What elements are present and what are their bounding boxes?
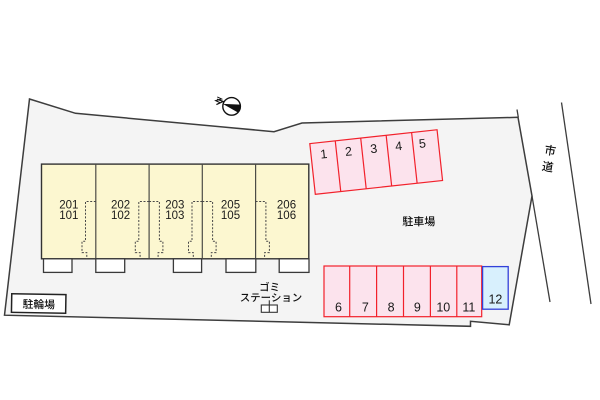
svg-text:105: 105	[221, 210, 240, 222]
svg-text:11: 11	[462, 300, 475, 314]
svg-text:8: 8	[388, 300, 395, 314]
svg-text:7: 7	[362, 300, 369, 314]
svg-text:101: 101	[59, 210, 78, 222]
svg-text:9: 9	[414, 300, 421, 314]
svg-text:10: 10	[436, 300, 450, 314]
svg-text:106: 106	[277, 210, 296, 222]
svg-text:102: 102	[111, 210, 130, 222]
svg-text:103: 103	[165, 210, 184, 222]
svg-text:12: 12	[488, 293, 502, 307]
svg-text:6: 6	[335, 300, 342, 314]
